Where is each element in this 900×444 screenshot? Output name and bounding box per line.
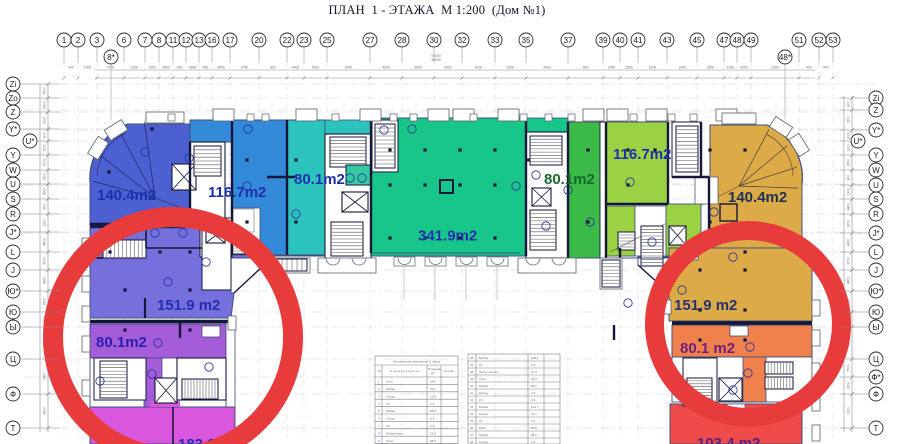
svg-text:Ю*: Ю* [870, 287, 881, 296]
svg-text:СУ: СУ [479, 398, 483, 402]
svg-text:29.8: 29.8 [430, 431, 436, 435]
svg-text:4000: 4000 [444, 66, 452, 70]
svg-text:7.4: 7.4 [531, 391, 536, 395]
svg-text:2.4: 2.4 [430, 402, 435, 406]
svg-text:3700: 3700 [43, 257, 47, 265]
svg-text:5200: 5200 [507, 66, 515, 70]
svg-text:3.6: 3.6 [531, 419, 536, 423]
svg-text:3700: 3700 [847, 220, 851, 228]
svg-text:3900: 3900 [217, 66, 225, 70]
svg-text:Мойка: Мойка [386, 409, 395, 413]
svg-text:101.7: 101.7 [531, 405, 539, 409]
svg-text:Склад: Склад [479, 391, 488, 395]
svg-text:2.2: 2.2 [430, 424, 435, 428]
svg-text:25.6: 25.6 [531, 426, 537, 430]
svg-text:2500: 2500 [625, 66, 633, 70]
svg-text:39000: 39000 [431, 58, 441, 62]
svg-text:Ф*: Ф* [871, 373, 880, 382]
svg-text:36: 36 [470, 363, 474, 367]
svg-text:L: L [874, 248, 879, 257]
svg-text:44: 44 [470, 412, 474, 416]
svg-text:4800: 4800 [847, 203, 851, 211]
svg-text:4400: 4400 [543, 66, 551, 70]
svg-text:11: 11 [169, 36, 178, 45]
svg-text:2600: 2600 [707, 66, 715, 70]
svg-text:J*: J* [872, 229, 879, 238]
svg-text:1300: 1300 [847, 188, 851, 196]
svg-text:6200: 6200 [649, 66, 657, 70]
svg-text:Холл: Холл [386, 439, 393, 443]
svg-text:43: 43 [662, 36, 672, 45]
svg-text:W: W [872, 166, 880, 175]
svg-text:1500: 1500 [847, 116, 851, 124]
svg-text:4800: 4800 [189, 66, 197, 70]
svg-text:40: 40 [615, 36, 625, 45]
svg-text:105.1: 105.1 [531, 356, 539, 360]
svg-text:42: 42 [470, 398, 474, 402]
svg-text:12: 12 [181, 36, 191, 45]
svg-text:400: 400 [806, 66, 812, 70]
svg-text:68.5: 68.5 [531, 433, 537, 437]
svg-text:16.7: 16.7 [531, 412, 537, 416]
svg-text:80.1m2: 80.1m2 [96, 334, 147, 351]
svg-text:2600: 2600 [847, 159, 851, 167]
svg-text:Экспликация помещений (1-этаж): Экспликация помещений (1-этаж) [393, 360, 440, 364]
svg-text:25: 25 [322, 36, 332, 45]
svg-text:46: 46 [470, 426, 474, 430]
svg-text:68.2: 68.2 [531, 384, 537, 388]
svg-text:1300: 1300 [43, 219, 47, 227]
svg-text:S: S [873, 195, 878, 204]
svg-text:Ю*: Ю* [7, 287, 18, 296]
svg-text:47: 47 [719, 36, 729, 45]
svg-text:151.9 m2: 151.9 m2 [674, 297, 737, 314]
svg-text:17: 17 [225, 36, 235, 45]
svg-text:Т: Т [874, 424, 879, 433]
svg-text:28: 28 [397, 36, 407, 45]
svg-text:5200: 5200 [312, 66, 320, 70]
svg-text:4400: 4400 [43, 277, 47, 285]
svg-text:40: 40 [470, 384, 474, 388]
svg-text:68.8: 68.8 [430, 409, 436, 413]
svg-text:49: 49 [746, 36, 756, 45]
svg-text:Ю: Ю [9, 308, 17, 317]
svg-text:СУ: СУ [386, 402, 390, 406]
svg-text:8*: 8* [107, 53, 116, 62]
svg-text:800: 800 [43, 132, 47, 138]
svg-text:2600: 2600 [43, 101, 47, 109]
svg-text:1300: 1300 [131, 66, 139, 70]
svg-text:32: 32 [457, 36, 467, 45]
svg-text:140.4m2: 140.4m2 [97, 187, 156, 204]
svg-text:4800: 4800 [43, 238, 47, 246]
svg-text:Zi: Zi [873, 94, 880, 103]
svg-text:Склад: Склад [386, 394, 395, 398]
svg-text:27: 27 [365, 36, 375, 45]
svg-text:41: 41 [633, 36, 643, 45]
svg-text:1000: 1000 [148, 66, 156, 70]
svg-text:Склад: Склад [479, 412, 488, 416]
svg-text:Z: Z [874, 106, 879, 115]
svg-text:51: 51 [794, 36, 804, 45]
svg-text:48: 48 [470, 440, 474, 444]
svg-text:Склад: Склад [386, 417, 395, 421]
svg-text:12.8: 12.8 [430, 394, 436, 398]
svg-text:Мойка: Мойка [479, 405, 488, 409]
svg-text:4.1: 4.1 [531, 363, 536, 367]
svg-text:1400: 1400 [678, 66, 686, 70]
svg-text:Y: Y [873, 151, 879, 160]
svg-text:Холл: Холл [479, 426, 486, 430]
svg-text:4100: 4100 [475, 66, 483, 70]
svg-text:U: U [873, 181, 879, 190]
svg-text:800: 800 [847, 101, 851, 107]
svg-text:6: 6 [122, 36, 127, 45]
svg-text:Y*: Y* [9, 125, 17, 134]
svg-text:Мойка: Мойка [479, 433, 488, 437]
svg-text:Zi: Zi [10, 80, 17, 89]
svg-text:1300: 1300 [847, 407, 851, 415]
svg-text:4000: 4000 [382, 66, 390, 70]
svg-text:2600: 2600 [43, 188, 47, 196]
svg-text:Y*: Y* [872, 126, 880, 135]
svg-text:Мойка: Мойка [479, 356, 488, 360]
svg-text:СУ: СУ [386, 424, 390, 428]
svg-text:Склад: Склад [479, 440, 488, 444]
svg-text:Ц: Ц [10, 355, 16, 364]
svg-text:Состав: Состав [444, 369, 454, 373]
svg-text:2600: 2600 [847, 382, 851, 390]
svg-text:7800: 7800 [43, 373, 47, 381]
svg-text:800: 800 [270, 66, 276, 70]
svg-text:600: 600 [583, 66, 589, 70]
svg-text:Ы: Ы [872, 323, 879, 332]
svg-text:СУ: СУ [479, 363, 483, 367]
svg-text:3700: 3700 [847, 257, 851, 265]
svg-text:Ф: Ф [10, 390, 16, 399]
svg-text:W: W [9, 166, 17, 175]
svg-text:38: 38 [470, 370, 474, 374]
svg-text:52: 52 [814, 36, 824, 45]
svg-text:35: 35 [470, 356, 474, 360]
svg-text:3000: 3000 [847, 132, 851, 140]
svg-text:800: 800 [43, 204, 47, 210]
svg-text:151.9 m2: 151.9 m2 [157, 297, 220, 314]
svg-text:7: 7 [143, 36, 148, 45]
svg-text:8.3: 8.3 [430, 417, 435, 421]
svg-text:3750: 3750 [241, 66, 249, 70]
svg-text:140.4m2: 140.4m2 [728, 189, 787, 206]
svg-text:25.6: 25.6 [531, 377, 537, 381]
svg-text:4400: 4400 [292, 66, 300, 70]
svg-text:200: 200 [177, 66, 183, 70]
svg-text:2600: 2600 [162, 66, 170, 70]
svg-text:400: 400 [203, 66, 209, 70]
svg-text:41: 41 [470, 391, 474, 395]
svg-text:30: 30 [429, 36, 439, 45]
svg-text:ПЛАН 1 - ЭТАЖА М 1:200 (Дом: ПЛАН 1 - ЭТАЖА М 1:200 (Дом №1) [328, 3, 545, 17]
svg-text:7500: 7500 [43, 87, 47, 95]
svg-text:47: 47 [470, 433, 474, 437]
svg-text:13: 13 [194, 36, 204, 45]
svg-text:1300: 1300 [84, 66, 92, 70]
svg-text:Т: Т [11, 424, 16, 433]
svg-text:Z: Z [11, 108, 16, 117]
svg-text:Zo: Zo [8, 94, 18, 103]
svg-text:400: 400 [823, 66, 829, 70]
svg-text:Y: Y [10, 151, 16, 160]
svg-text:4700: 4700 [345, 66, 353, 70]
svg-text:Ю: Ю [872, 308, 880, 317]
svg-text:4400: 4400 [847, 239, 851, 247]
svg-text:28.0: 28.0 [430, 439, 436, 443]
svg-text:1300: 1300 [43, 117, 47, 125]
svg-text:1300: 1300 [727, 66, 735, 70]
svg-text:Н а и м е н о в а н и е: Н а и м е н о в а н и е [390, 369, 420, 373]
svg-text:Холл: Холл [479, 377, 486, 381]
svg-text:116.7m2: 116.7m2 [208, 184, 266, 201]
svg-text:8: 8 [157, 36, 162, 45]
svg-text:39: 39 [598, 36, 608, 45]
svg-text:Мойка-комн.: Мойка-комн. [386, 431, 404, 435]
svg-text:1300: 1300 [771, 66, 779, 70]
svg-text:80.1m2: 80.1m2 [294, 171, 345, 188]
svg-text:400: 400 [68, 66, 74, 70]
svg-text:341.9m2: 341.9m2 [418, 228, 477, 245]
svg-text:48: 48 [732, 36, 742, 45]
svg-text:80.1 m2: 80.1 m2 [680, 340, 735, 357]
svg-text:53: 53 [828, 36, 838, 45]
svg-text:1: 1 [62, 36, 67, 45]
svg-text:Мойка: Мойка [479, 384, 488, 388]
svg-text:39: 39 [470, 377, 474, 381]
svg-text:J*: J* [9, 228, 16, 237]
svg-text:3000: 3000 [43, 159, 47, 167]
svg-text:3700: 3700 [43, 298, 47, 306]
svg-text:45: 45 [470, 419, 474, 423]
svg-text:Ф: Ф [873, 390, 879, 399]
svg-text:45: 45 [692, 36, 702, 45]
svg-text:J: J [874, 266, 878, 275]
svg-text:3600: 3600 [414, 66, 422, 70]
svg-text:16: 16 [207, 36, 217, 45]
svg-text:R: R [10, 210, 16, 219]
svg-text:4700: 4700 [107, 66, 115, 70]
svg-text:Ы: Ы [9, 323, 16, 332]
svg-text:U*: U* [26, 137, 35, 146]
svg-text:1300: 1300 [43, 173, 47, 181]
svg-text:1500: 1500 [43, 144, 47, 152]
svg-text:800: 800 [847, 175, 851, 181]
svg-text:55.2: 55.2 [430, 387, 436, 391]
svg-text:R: R [873, 210, 879, 219]
svg-text:37: 37 [563, 36, 573, 45]
svg-text:21.3: 21.3 [531, 370, 537, 374]
svg-text:28.0: 28.0 [430, 380, 436, 384]
svg-text:Мойка: Мойка [386, 387, 395, 391]
svg-text:103.4 m2: 103.4 m2 [697, 435, 760, 444]
svg-text:3: 3 [95, 36, 100, 45]
svg-text:116.7m2: 116.7m2 [613, 146, 671, 163]
svg-text:23: 23 [299, 36, 309, 45]
svg-text:80.1m2: 80.1m2 [544, 171, 595, 188]
svg-text:U*: U* [854, 137, 863, 146]
svg-text:22: 22 [282, 36, 292, 45]
svg-text:J: J [11, 266, 15, 275]
svg-text:Холл: Холл [386, 380, 393, 384]
svg-text:СУ: СУ [479, 419, 483, 423]
svg-text:S: S [10, 195, 15, 204]
svg-text:U: U [10, 180, 16, 189]
svg-text:20: 20 [254, 36, 264, 45]
svg-text:2.2: 2.2 [531, 398, 536, 402]
svg-text:3800: 3800 [43, 407, 47, 415]
svg-text:35: 35 [521, 36, 531, 45]
svg-text:4400: 4400 [847, 277, 851, 285]
svg-text:33: 33 [490, 36, 500, 45]
svg-text:Лестн. клетка: Лестн. клетка [479, 370, 498, 374]
svg-text:Ц: Ц [873, 355, 879, 364]
svg-text:L: L [11, 248, 16, 257]
svg-text:м²: м² [431, 371, 434, 375]
svg-text:1300: 1300 [847, 144, 851, 152]
svg-text:7500: 7500 [847, 364, 851, 372]
svg-text:48*: 48* [779, 53, 792, 62]
svg-text:2: 2 [76, 36, 81, 45]
svg-text:9000: 9000 [740, 66, 748, 70]
svg-text:3750: 3750 [608, 66, 616, 70]
svg-text:7.4: 7.4 [531, 440, 536, 444]
svg-text:43: 43 [470, 405, 474, 409]
